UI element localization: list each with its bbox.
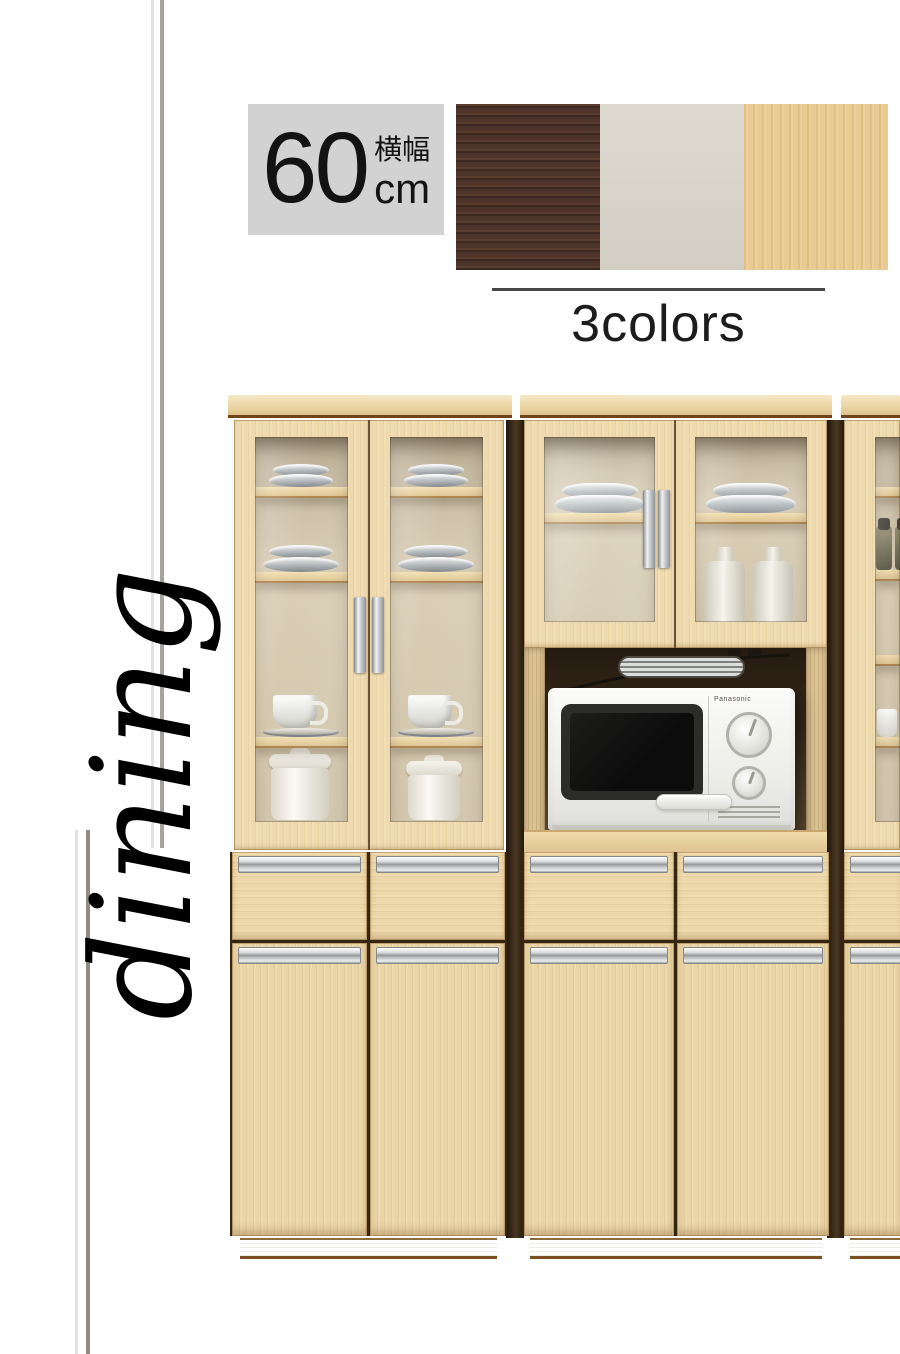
cabinet-top-board	[841, 395, 900, 418]
microwave-dial-timer	[726, 712, 772, 758]
door-window	[695, 437, 807, 622]
door-seam	[368, 420, 370, 850]
kickboard	[240, 1238, 497, 1259]
door-window	[875, 437, 900, 822]
lower-door	[524, 943, 674, 1236]
drawer-handle	[850, 856, 900, 873]
width-unit: cm	[374, 167, 430, 211]
outlet-socket	[748, 649, 761, 656]
glass-door	[844, 420, 900, 850]
outlet-socket	[728, 649, 741, 656]
cabinet-middle: Panasonic	[518, 395, 832, 1259]
cabinet-left	[228, 395, 512, 1259]
glass-door	[369, 420, 504, 850]
door-window	[255, 437, 348, 822]
color-swatches	[456, 104, 888, 270]
door-handle	[658, 490, 670, 568]
lower-door	[677, 943, 829, 1236]
door-handle	[354, 597, 366, 673]
glass-door-section	[234, 420, 504, 850]
door-window	[390, 437, 483, 822]
colors-count-label: 3colors	[492, 294, 825, 354]
product-banner: { "badge": { "value": "60", "unit": "cm"…	[0, 0, 900, 1354]
glass-pane	[544, 437, 655, 622]
cabinet-top-board	[520, 395, 832, 418]
drawer-handle	[376, 856, 499, 873]
microwave-bay: Panasonic	[524, 648, 827, 852]
glass-door-section	[844, 420, 900, 850]
door-bar-handle	[850, 947, 900, 964]
drawer-handle	[530, 856, 668, 873]
glass-door	[234, 420, 369, 850]
product-photo: Panasonic	[225, 393, 900, 1263]
drawer	[844, 852, 900, 940]
kickboard	[530, 1238, 822, 1259]
drawer-door-section	[842, 852, 900, 1236]
door-handle	[643, 490, 655, 568]
drawer-handle	[683, 856, 823, 873]
door-seam	[674, 420, 676, 648]
microwave-handle	[656, 794, 732, 810]
lower-door	[370, 943, 505, 1236]
glass-pane	[875, 437, 900, 822]
microwave-dial-power	[732, 766, 766, 800]
door-bar-handle	[530, 947, 668, 964]
drawer-door-section	[230, 852, 507, 1236]
drawer	[524, 852, 674, 940]
door-bar-handle	[238, 947, 361, 964]
drawer-handle	[238, 856, 361, 873]
vent-grille	[618, 656, 745, 678]
glass-door	[675, 420, 827, 648]
kickboard	[850, 1238, 900, 1259]
lower-door	[232, 943, 367, 1236]
glass-pane	[695, 437, 807, 622]
width-label-jp: 横幅	[374, 134, 430, 166]
door-bar-handle	[376, 947, 499, 964]
glass-pane	[390, 437, 483, 822]
drawer-door-section	[522, 852, 831, 1236]
lower-door	[844, 943, 900, 1236]
swatch-white	[600, 104, 744, 270]
swatch-natural	[744, 104, 888, 270]
microwave-window	[561, 704, 703, 800]
drawer	[232, 852, 367, 940]
door-handle	[372, 597, 384, 673]
cabinet-top-board	[228, 395, 512, 418]
bay-side-wall	[806, 648, 827, 852]
glass-pane	[255, 437, 348, 822]
swatch-dark-brown	[456, 104, 600, 270]
bay-side-wall	[524, 648, 545, 852]
microwave-window-glass	[570, 713, 694, 791]
door-window	[544, 437, 655, 622]
bay-shelf-board	[524, 830, 827, 852]
drawer	[370, 852, 505, 940]
microwave-brand: Panasonic	[714, 696, 751, 703]
width-badge: 60 横幅 cm	[248, 104, 444, 235]
width-value: 60	[262, 118, 367, 218]
glass-door-section	[524, 420, 827, 648]
cabinet-right	[838, 395, 900, 1259]
microwave: Panasonic	[548, 688, 795, 830]
drawer	[677, 852, 829, 940]
door-bar-handle	[683, 947, 823, 964]
swatch-underline	[492, 288, 825, 291]
